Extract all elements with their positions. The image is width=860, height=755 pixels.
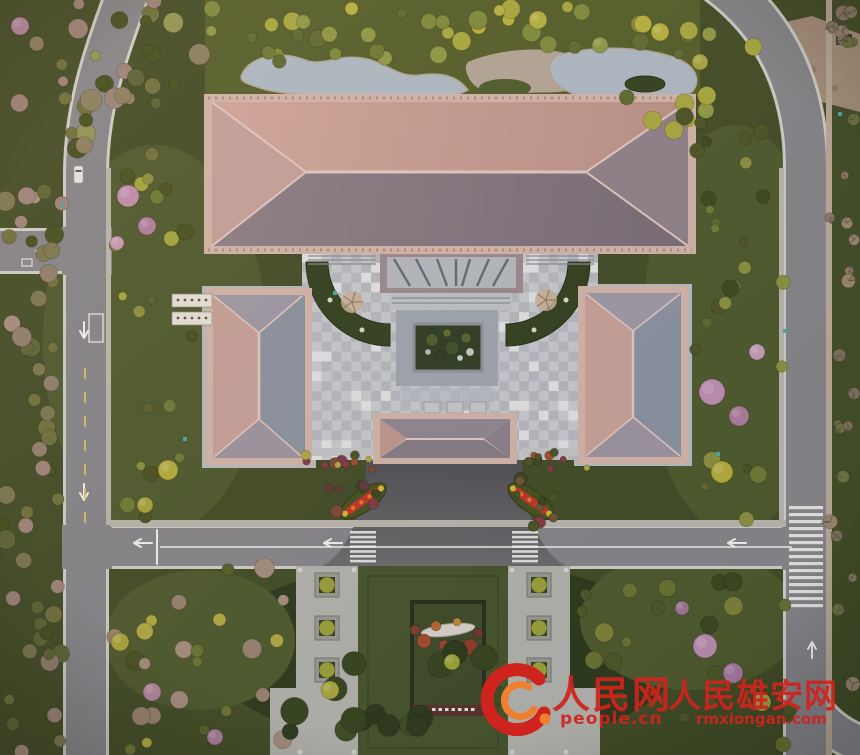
aerial-photo-canvas: 人民网 · 人民雄安网 people.cn rmxiongan.com	[0, 0, 860, 755]
logo-flame-dot	[540, 714, 551, 725]
vignette	[0, 0, 860, 755]
watermark-domain1: people.cn	[560, 709, 663, 729]
aerial-scene: 人民网 · 人民雄安网 people.cn rmxiongan.com	[0, 0, 860, 755]
watermark-separator: ·	[647, 679, 657, 709]
watermark-domain2: rmxiongan.com	[696, 710, 827, 728]
